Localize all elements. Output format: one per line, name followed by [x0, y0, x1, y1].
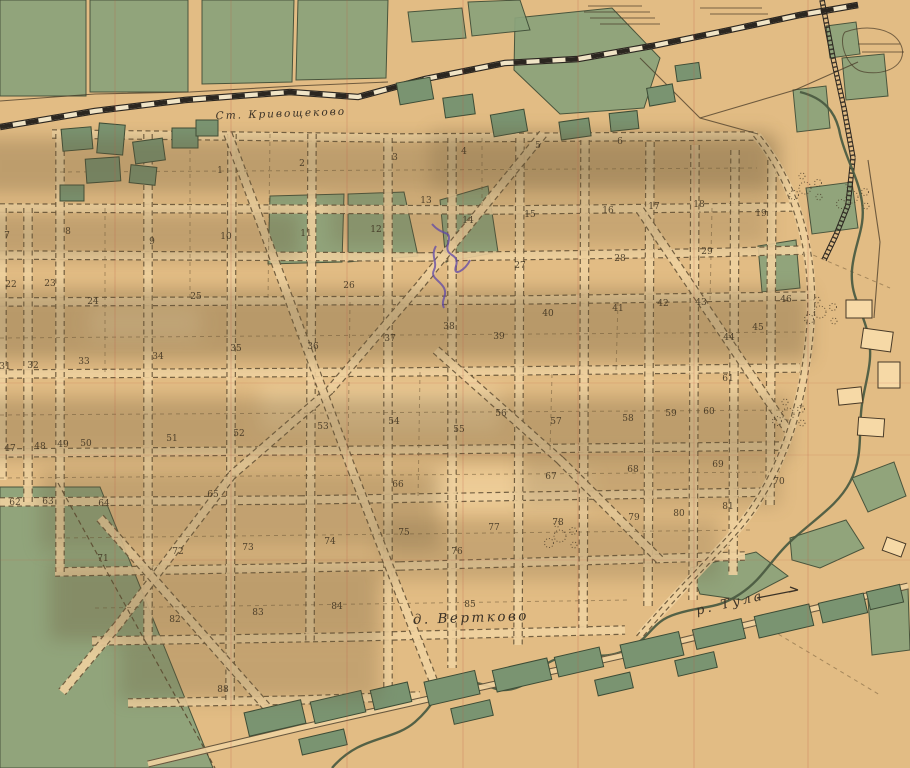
block-number: 64 [98, 499, 110, 509]
block-number: 54 [388, 417, 400, 427]
block-number: 32 [27, 361, 38, 371]
block-number: 47 [4, 444, 16, 454]
block-number: 76 [451, 547, 463, 557]
aging-wash [120, 640, 380, 700]
block-number: 49 [57, 440, 69, 450]
block-number: 57 [550, 417, 562, 427]
block-number: 11 [300, 229, 311, 239]
block-number: 74 [324, 537, 336, 547]
block-number: 28 [614, 254, 626, 264]
block-number: 25 [190, 292, 202, 302]
aging-wash [50, 560, 380, 640]
block-number: 17 [648, 202, 660, 212]
block-number: 41 [612, 304, 623, 314]
block-number: 10 [220, 232, 232, 242]
block-number: 27 [514, 261, 526, 271]
green-area [90, 0, 188, 92]
aging-wash [0, 290, 810, 360]
green-area [793, 86, 830, 132]
block-number: 37 [384, 334, 396, 344]
block-number: 68 [627, 465, 639, 475]
block-number: 88 [217, 685, 229, 695]
block-number: 15 [524, 210, 536, 220]
block-number: 67 [545, 472, 557, 482]
block-number: 16 [602, 206, 614, 216]
block-number: 29 [701, 247, 713, 257]
block-number: 45 [752, 323, 764, 333]
aging-wash [430, 130, 770, 190]
block-number: 18 [693, 200, 705, 210]
block-number: 1 [217, 166, 223, 176]
block-number: 48 [34, 442, 46, 452]
block-number: 71 [97, 554, 108, 564]
building-outline [857, 417, 884, 437]
block-number: 83 [252, 608, 264, 618]
block-number: 33 [78, 357, 90, 367]
green-area [806, 182, 858, 234]
scanned-map-screenshot: 1234567891011121314151617181922232425262… [0, 0, 910, 768]
block-number: 50 [80, 439, 92, 449]
block-number: 46 [780, 295, 792, 305]
green-area [408, 8, 466, 42]
building-outline [846, 300, 872, 318]
building-outline [878, 362, 900, 388]
block-number: 9 [149, 237, 155, 247]
building-green [196, 120, 218, 136]
block-number: 26 [343, 281, 355, 291]
building-outline [837, 387, 863, 405]
block-number: 70 [773, 477, 785, 487]
block-number: 35 [230, 344, 242, 354]
block-number: 81 [722, 502, 733, 512]
block-number: 61 [722, 374, 733, 384]
block-number: 77 [488, 523, 500, 533]
block-number: 52 [233, 429, 244, 439]
aging-wash [380, 520, 720, 580]
block-number: 79 [628, 513, 640, 523]
block-number: 6 [617, 137, 623, 147]
aging-wash [0, 212, 300, 258]
block-number: 36 [307, 342, 319, 352]
block-number: 59 [665, 409, 677, 419]
block-number: 66 [392, 480, 404, 490]
block-number: 82 [169, 615, 180, 625]
block-number: 4 [461, 147, 467, 157]
block-number: 44 [723, 333, 735, 343]
block-number: 85 [464, 600, 476, 610]
block-number: 53 [317, 422, 329, 432]
block-number: 43 [695, 298, 707, 308]
block-number: 24 [87, 297, 99, 307]
block-number: 3 [392, 153, 398, 163]
block-number: 63 [42, 497, 54, 507]
block-number: 75 [398, 528, 410, 538]
block-number: 78 [552, 518, 564, 528]
block-number: 73 [242, 543, 254, 553]
block-number: 60 [703, 407, 715, 417]
aging-wash [0, 398, 790, 458]
building-outline [861, 328, 893, 352]
building-green [675, 62, 701, 81]
block-number: 40 [542, 309, 554, 319]
green-area [468, 0, 530, 36]
block-number: 65 [207, 490, 219, 500]
aging-wash [520, 452, 780, 506]
block-number: 14 [462, 216, 474, 226]
green-area [202, 0, 294, 84]
map-canvas: 1234567891011121314151617181922232425262… [0, 0, 910, 768]
building-green [647, 84, 676, 106]
block-number: 42 [657, 299, 668, 309]
block-number: 22 [5, 280, 16, 290]
block-number: 5 [535, 141, 541, 151]
block-number: 80 [673, 509, 685, 519]
building-green [609, 111, 639, 132]
block-number: 19 [755, 209, 767, 219]
green-area [0, 0, 86, 96]
block-number: 39 [493, 332, 505, 342]
block-number: 23 [44, 279, 56, 289]
block-number: 51 [166, 434, 177, 444]
block-number: 13 [420, 196, 432, 206]
block-number: 58 [622, 414, 634, 424]
block-number: 72 [172, 547, 183, 557]
block-number: 84 [331, 602, 343, 612]
block-number: 12 [370, 225, 381, 235]
block-number: 38 [443, 322, 455, 332]
block-number: 34 [152, 352, 164, 362]
green-area [296, 0, 388, 80]
block-number: 2 [299, 159, 305, 169]
building-green [443, 94, 475, 118]
block-number: 7 [4, 231, 10, 241]
block-number: 8 [65, 227, 71, 237]
block-number: 55 [453, 425, 465, 435]
block-number: 56 [495, 409, 507, 419]
block-number: 31 [0, 362, 11, 372]
block-number: 62 [9, 498, 20, 508]
block-number: 69 [712, 460, 724, 470]
